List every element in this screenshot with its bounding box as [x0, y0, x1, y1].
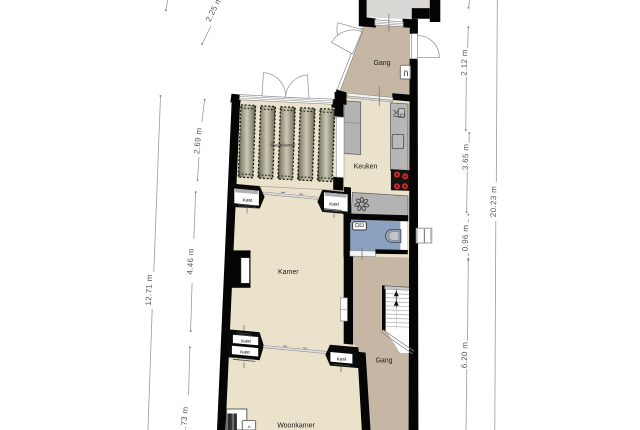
svg-text:Kast: Kast — [337, 357, 347, 363]
svg-text:^: ^ — [248, 426, 251, 430]
svg-text:Woonkamer: Woonkamer — [277, 422, 315, 429]
svg-text:Kast: Kast — [329, 202, 339, 208]
svg-text:20.23 m: 20.23 m — [489, 186, 498, 217]
svg-text:0.96 m: 0.96 m — [461, 225, 471, 252]
svg-text:Keuken: Keuken — [354, 164, 378, 171]
svg-text:Kast: Kast — [243, 198, 253, 204]
svg-text:3.65 m: 3.65 m — [461, 144, 471, 171]
svg-text:Gang: Gang — [373, 60, 390, 67]
svg-text:Kamer: Kamer — [278, 269, 299, 276]
svg-text:2.12 m: 2.12 m — [460, 49, 470, 76]
svg-text:Kast: Kast — [240, 350, 250, 356]
svg-text:12.71 m: 12.71 m — [144, 274, 154, 306]
svg-text:4.46 m: 4.46 m — [185, 248, 195, 275]
svg-text:Slaapkamer: Slaapkamer — [270, 142, 296, 148]
svg-text:Gang: Gang — [375, 358, 392, 365]
svg-text:6.20 m: 6.20 m — [460, 342, 470, 369]
svg-text:Kast: Kast — [241, 339, 251, 345]
